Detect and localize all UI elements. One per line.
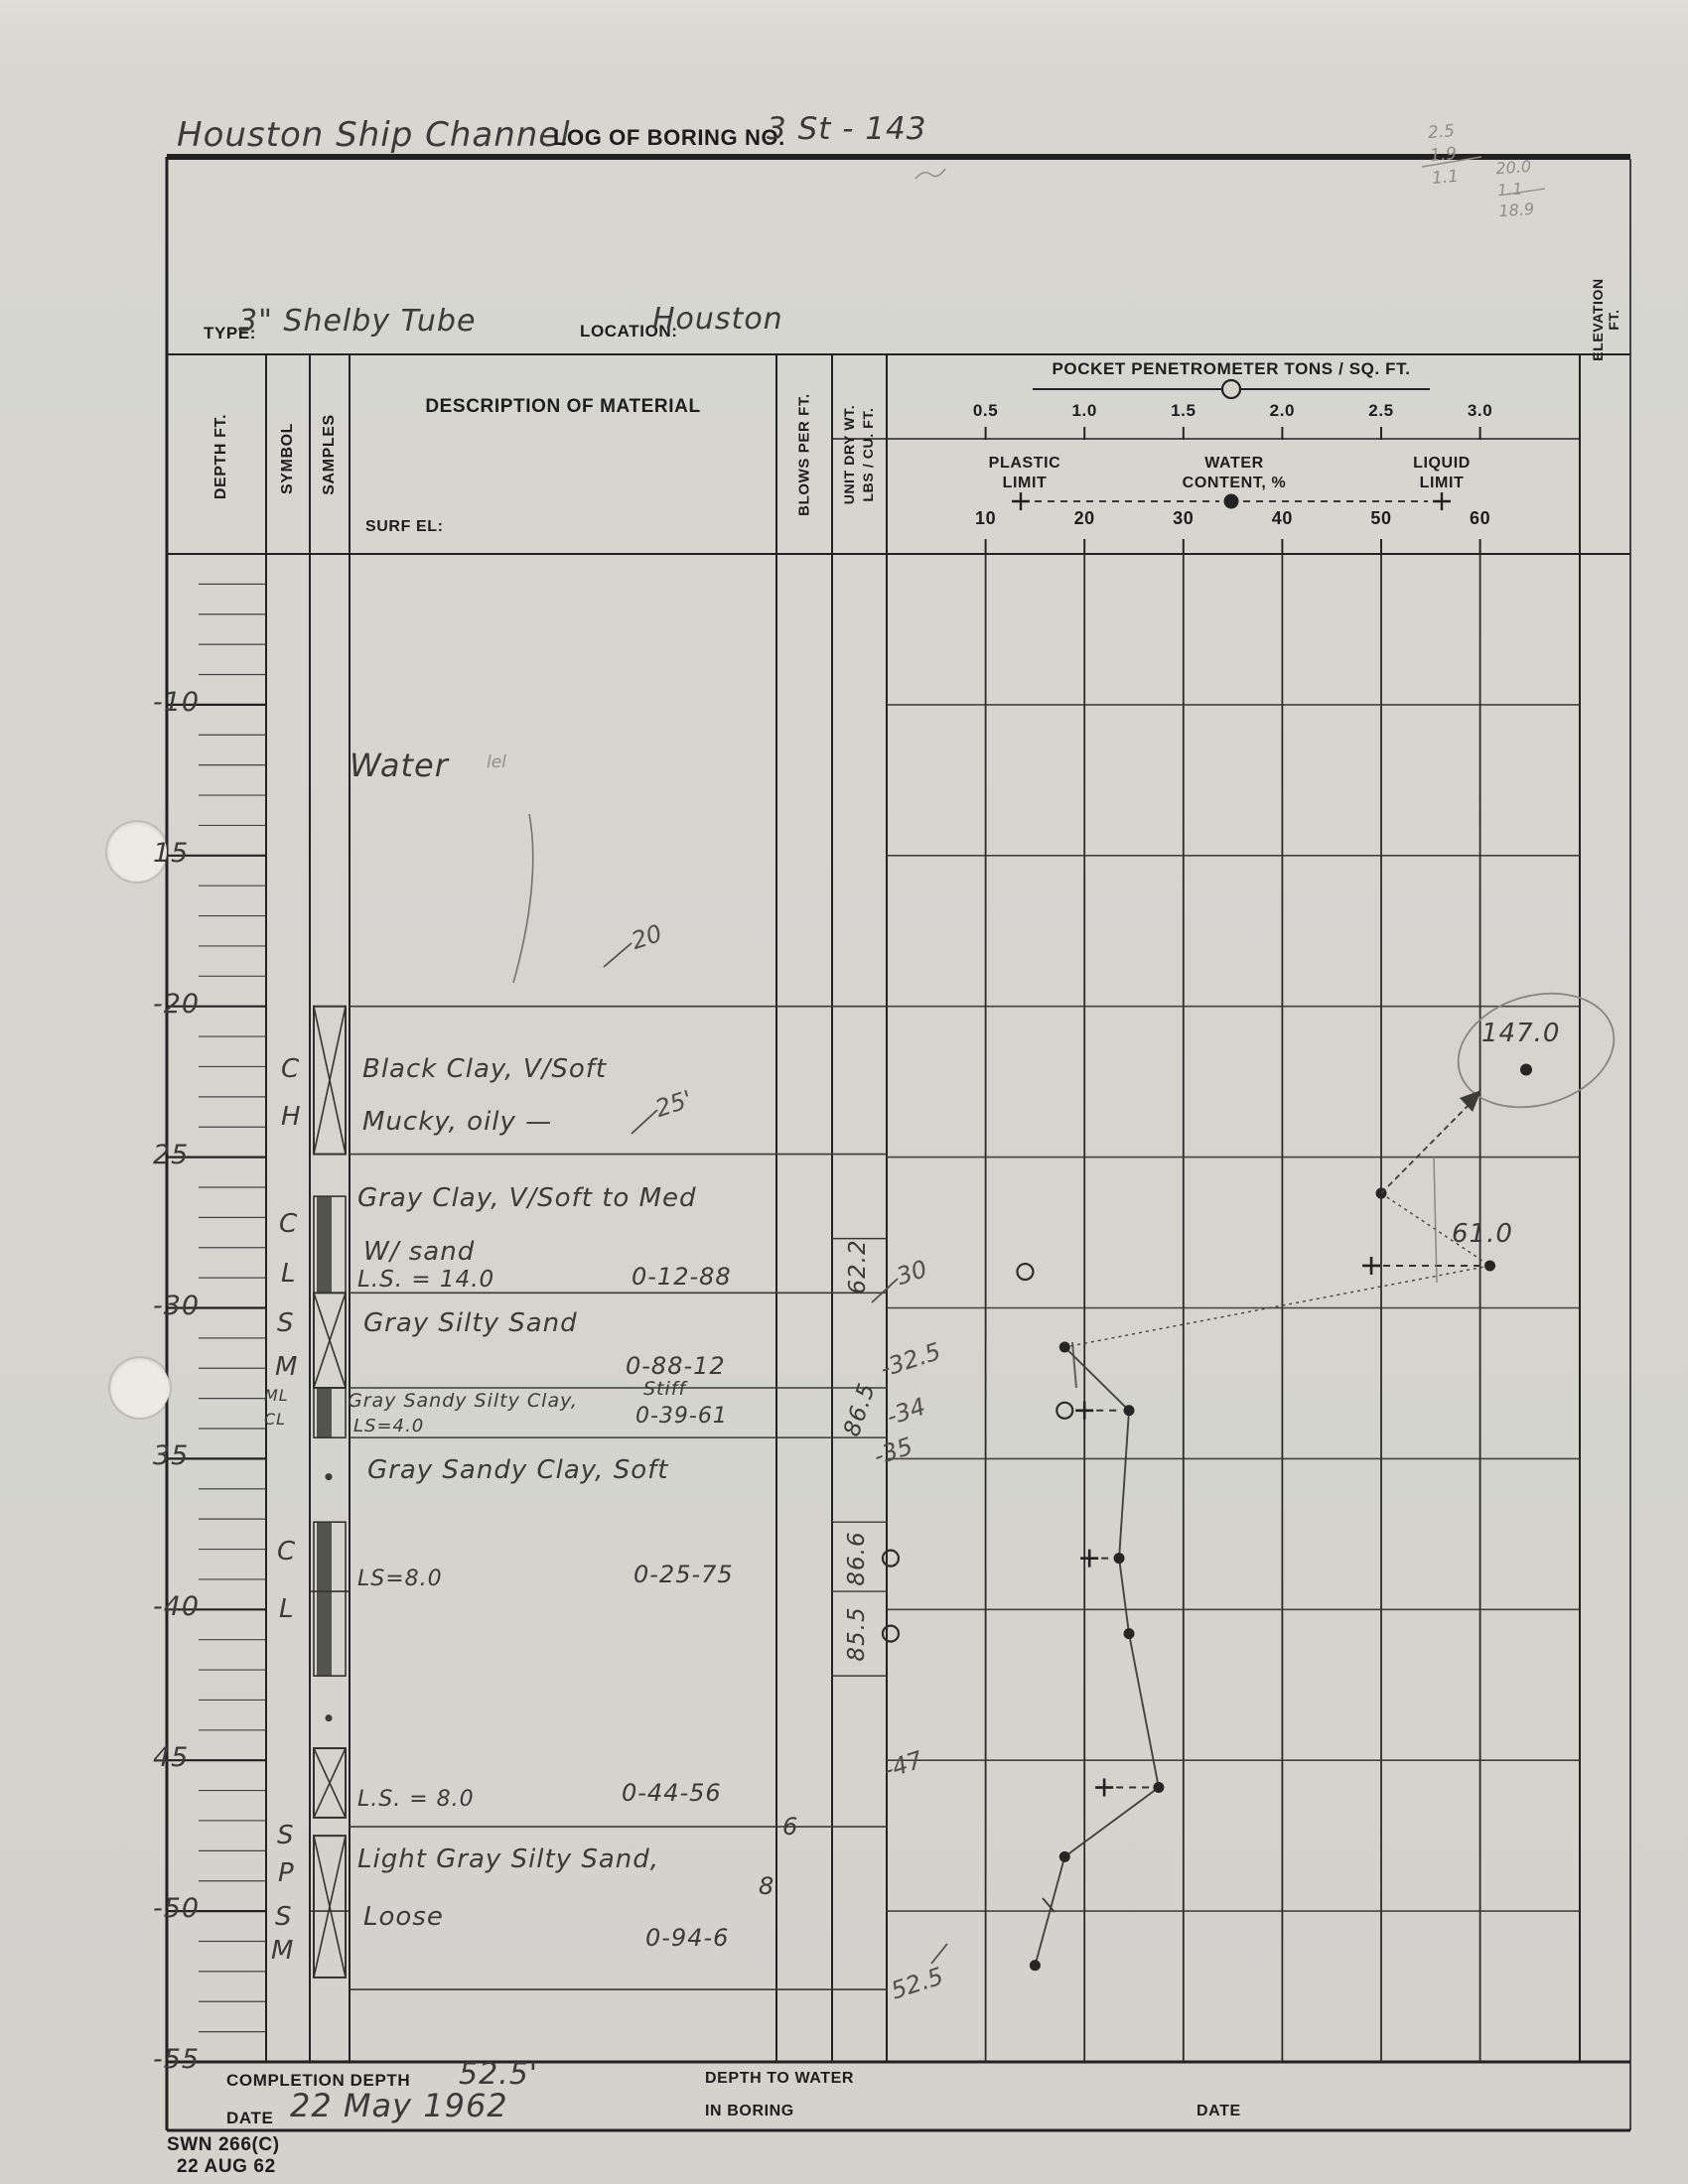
log-entry: W/ sand (363, 1237, 475, 1267)
soil-symbol: ML (264, 1386, 289, 1405)
log-entry: 0-94-6 (645, 1924, 729, 1952)
type-value: 3" Shelby Tube (238, 304, 476, 339)
depth-label: 25 (153, 1140, 189, 1170)
symbol-column-header: SYMBOL (279, 423, 297, 494)
log-entry: L.S. = 14.0 (357, 1267, 494, 1293)
unit-dry-weight-value: 62.2 (845, 1239, 871, 1294)
offscale-value-label: 147.0 (1481, 1019, 1560, 1048)
log-entry: Water (350, 747, 449, 784)
wc-scale-tick-label: 10 (975, 508, 996, 529)
log-entry: Mucky, oily — (362, 1107, 552, 1137)
water-content-label: WATER CONTENT, % (1183, 454, 1287, 493)
log-entry: 8 (759, 1872, 774, 1900)
unit-dry-weight-value: 86.6 (844, 1531, 870, 1585)
pencil-notes-col2: 20.0 1.1 18.9 (1495, 156, 1535, 222)
soil-symbol: M (275, 1352, 298, 1382)
pen-scale-tick-label: 1.0 (1071, 401, 1096, 421)
wc-scale-tick-label: 20 (1074, 508, 1095, 529)
depth-label: -10 (153, 687, 200, 718)
log-entry: Gray Sandy Silty Clay, (348, 1390, 578, 1412)
soil-symbol: CL (264, 1410, 286, 1429)
boring-number: 3 St - 143 (767, 111, 926, 147)
footer-date-label: DATE (226, 2109, 273, 2128)
description-column-header: DESCRIPTION OF MATERIAL (425, 396, 700, 418)
log-entry: 6 (782, 1813, 798, 1841)
depth-label: 35 (153, 1440, 189, 1471)
pen-scale-tick-label: 2.0 (1270, 401, 1295, 421)
project-title: Houston Ship Channel (177, 115, 571, 155)
form-number: SWN 266(C) (167, 2134, 280, 2156)
log-entry: lel (487, 752, 506, 772)
depth-label: -55 (153, 2044, 200, 2075)
soil-symbol: L (281, 1259, 297, 1289)
depth-label: -20 (153, 989, 200, 1020)
penetrometer-title: POCKET PENETROMETER TONS / SQ. FT. (1052, 359, 1410, 379)
depth-to-water-label-2: IN BORING (705, 2103, 794, 2120)
soil-symbol: C (277, 1537, 296, 1567)
boring-log-label: LOG OF BORING NO. (553, 125, 785, 151)
soil-symbol: C (279, 1209, 298, 1239)
log-entry: L.S. = 8.0 (357, 1787, 475, 1812)
depth-label: -30 (153, 1291, 200, 1321)
depth-to-water-label-1: DEPTH TO WATER (705, 2070, 854, 2088)
footer-date2-label: DATE (1196, 2103, 1241, 2120)
log-entry: Gray Silty Sand (363, 1308, 578, 1338)
wc-scale-tick-label: 60 (1470, 508, 1490, 529)
log-entry: LS=4.0 (353, 1416, 424, 1436)
depth-label: 15 (153, 838, 189, 869)
log-entry: Stiff (643, 1378, 686, 1400)
wc-scale-tick-label: 40 (1272, 508, 1293, 529)
log-entry: 0-88-12 (626, 1352, 726, 1380)
soil-symbol: L (279, 1594, 295, 1624)
depth-column-header: DEPTH FT. (212, 414, 230, 499)
unit-dry-wt-column-header: UNIT DRY WT. LBS / CU. FT. (840, 405, 878, 505)
blows-column-header: BLOWS PER FT. (796, 393, 813, 516)
footer-date-value: 22 May 1962 (290, 2087, 508, 2124)
pen-scale-tick-label: 3.0 (1468, 401, 1492, 421)
water-content-value-label: 61.0 (1452, 1219, 1513, 1249)
depth-label: 45 (153, 1742, 189, 1773)
soil-symbol: S (277, 1308, 295, 1338)
boring-log-page: Houston Ship Channel LOG OF BORING NO. 3… (0, 0, 1688, 2184)
pen-scale-tick-label: 2.5 (1368, 401, 1393, 421)
liquid-limit-label: LIQUID LIMIT (1413, 454, 1471, 493)
log-entry: Loose (363, 1902, 444, 1932)
log-entry: 0-12-88 (632, 1263, 732, 1291)
depth-label: -40 (153, 1591, 200, 1622)
log-entry: Gray Clay, V/Soft to Med (357, 1183, 697, 1213)
hole-punch-bottom (110, 1358, 170, 1418)
soil-symbol: C (281, 1054, 300, 1084)
soil-symbol: S (275, 1902, 293, 1932)
depth-label: -50 (153, 1893, 200, 1924)
log-entry: 0-25-75 (633, 1561, 734, 1588)
log-entry: 0-39-61 (635, 1404, 728, 1429)
log-entry: Light Gray Silty Sand, (357, 1844, 659, 1874)
log-entry: LS=8.0 (357, 1567, 443, 1591)
form-date: 22 AUG 62 (177, 2156, 276, 2178)
soil-symbol: P (278, 1858, 295, 1888)
soil-symbol: H (281, 1102, 302, 1132)
pen-scale-tick-label: 0.5 (973, 401, 998, 421)
surf-el-label: SURF EL: (365, 518, 444, 536)
elevation-column-header: ELEVATION FT. (1590, 278, 1621, 360)
wc-scale-tick-label: 30 (1173, 508, 1194, 529)
log-entry: Gray Sandy Clay, Soft (367, 1455, 668, 1485)
location-value: Houston (652, 302, 783, 337)
wc-scale-tick-label: 50 (1370, 508, 1391, 529)
log-entry: Black Clay, V/Soft (362, 1054, 607, 1084)
unit-dry-weight-value: 85.5 (844, 1606, 870, 1661)
soil-symbol: M (271, 1936, 294, 1966)
soil-symbol: S (277, 1821, 295, 1850)
pen-scale-tick-label: 1.5 (1171, 401, 1196, 421)
samples-column-header: SAMPLES (321, 414, 339, 495)
plastic-limit-label: PLASTIC LIMIT (989, 454, 1061, 493)
log-entry: 0-44-56 (622, 1779, 722, 1807)
